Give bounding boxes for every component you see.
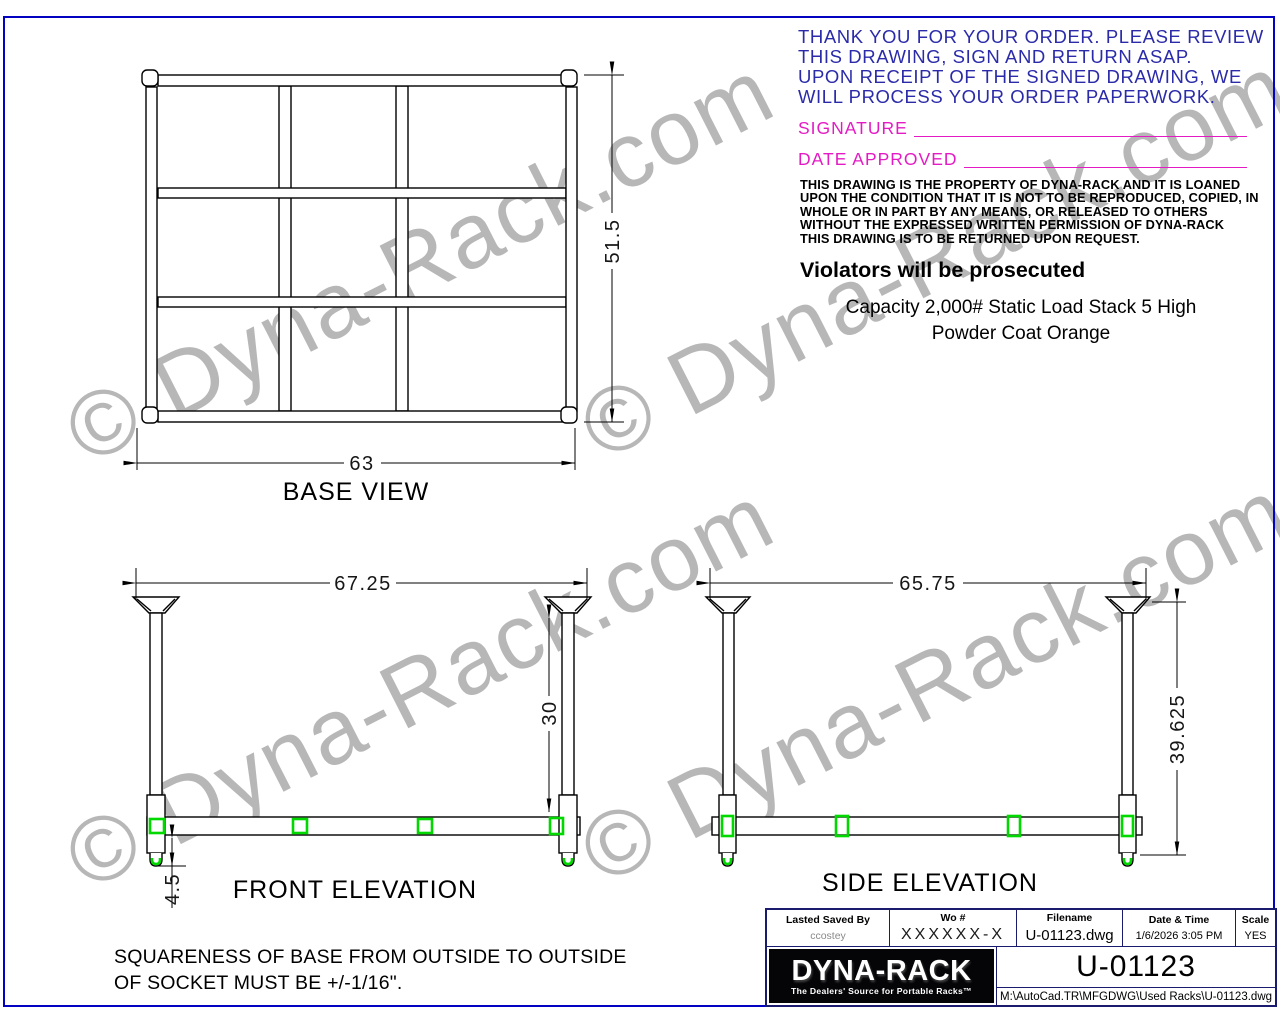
dyna-rack-logo: DYNA-RACK The Dealers' Source for Portab… (769, 949, 994, 1003)
field-scale: Scale YES (1236, 910, 1275, 946)
field-date-time: Date & Time 1/6/2026 3:05 PM (1123, 910, 1236, 946)
legal-line: WITHOUT THE EXPRESSED WRITTEN PERMISSION… (800, 218, 1259, 231)
signature-row: SIGNATURE (798, 118, 1247, 139)
order-notice-line: THIS DRAWING, SIGN AND RETURN ASAP. (798, 47, 1264, 67)
field-value: YES (1236, 930, 1275, 942)
field-value: ccostey (767, 930, 889, 942)
title-block: Lasted Saved By ccostey Wo # XXXXXX-X Fi… (765, 908, 1277, 1007)
legal-notice: THIS DRAWING IS THE PROPERTY OF DYNA-RAC… (800, 178, 1259, 245)
legal-line: UPON THE CONDITION THAT IT IS NOT TO BE … (800, 191, 1259, 204)
date-approved-row: DATE APPROVED (798, 149, 1247, 170)
squareness-note-line: OF SOCKET MUST BE +/-1/16". (114, 970, 627, 996)
field-value: 1/6/2026 3:05 PM (1123, 930, 1235, 942)
base-width-dimension: 63 (349, 453, 374, 475)
field-last-saved-by: Lasted Saved By ccostey (767, 910, 890, 946)
side-elevation-drawing (706, 597, 1150, 866)
front-elevation-drawing (133, 597, 591, 866)
date-approved-label: DATE APPROVED (798, 149, 958, 170)
drawing-sheet: © Dyna-Rack.com © Dyna-Rack.com © Dyna-R… (0, 0, 1280, 1024)
front-elevation-label: FRONT ELEVATION (233, 876, 477, 904)
field-wo-number: Wo # XXXXXX-X (890, 910, 1017, 946)
file-path: M:\AutoCad.TR\MFGDWG\Used Racks\U-01123.… (997, 988, 1275, 1005)
date-approved-line (964, 149, 1247, 168)
title-block-bottom-row: DYNA-RACK The Dealers' Source for Portab… (767, 947, 1275, 1005)
squareness-note: SQUARENESS OF BASE FROM OUTSIDE TO OUTSI… (114, 944, 627, 996)
drawing-number: U-01123 (997, 947, 1275, 988)
field-label: Lasted Saved By (767, 914, 889, 926)
logo-tagline: The Dealers' Source for Portable Racks™ (791, 986, 972, 996)
front-foot-dimension: 4.5 (162, 873, 184, 905)
base-height-dimension: 51.5 (602, 219, 624, 264)
signature-line (914, 118, 1247, 137)
order-notice: THANK YOU FOR YOUR ORDER. PLEASE REVIEW … (798, 27, 1264, 107)
legal-line: WHOLE OR IN PART BY ANY MEANS, OR RELEAS… (800, 205, 1259, 218)
capacity-spec-line: Powder Coat Orange (800, 321, 1242, 347)
base-view-drawing (142, 70, 577, 423)
field-value: XXXXXX-X (890, 926, 1016, 944)
legal-line: THIS DRAWING IS TO BE RETURNED UPON REQU… (800, 232, 1259, 245)
side-elevation-label: SIDE ELEVATION (822, 869, 1038, 897)
field-label: Wo # (890, 912, 1016, 924)
front-width-dimension: 67.25 (334, 573, 392, 595)
drawing-id-cell: U-01123 M:\AutoCad.TR\MFGDWG\Used Racks\… (997, 947, 1275, 1005)
legal-line: THIS DRAWING IS THE PROPERTY OF DYNA-RAC… (800, 178, 1259, 191)
side-elevation-dimension-lines (710, 568, 1186, 855)
logo-cell: DYNA-RACK The Dealers' Source for Portab… (767, 947, 997, 1005)
side-width-dimension: 65.75 (899, 573, 957, 595)
field-filename: Filename U-01123.dwg (1017, 910, 1123, 946)
order-notice-line: UPON RECEIPT OF THE SIGNED DRAWING, WE (798, 67, 1264, 87)
front-elevation-dimension-lines (136, 568, 587, 908)
front-height-dimension: 30 (539, 700, 561, 725)
base-view-label: BASE VIEW (283, 478, 430, 506)
order-notice-line: WILL PROCESS YOUR ORDER PAPERWORK. (798, 87, 1264, 107)
field-label: Scale (1236, 914, 1275, 926)
field-label: Date & Time (1123, 914, 1235, 926)
squareness-note-line: SQUARENESS OF BASE FROM OUTSIDE TO OUTSI… (114, 944, 627, 970)
violators-warning: Violators will be prosecuted (800, 258, 1085, 283)
logo-wordmark: DYNA-RACK (791, 956, 971, 986)
capacity-spec: Capacity 2,000# Static Load Stack 5 High… (800, 295, 1242, 347)
capacity-spec-line: Capacity 2,000# Static Load Stack 5 High (800, 295, 1242, 321)
order-notice-line: THANK YOU FOR YOUR ORDER. PLEASE REVIEW (798, 27, 1264, 47)
signature-label: SIGNATURE (798, 118, 908, 139)
side-height-dimension: 39.625 (1167, 694, 1189, 764)
title-block-header-row: Lasted Saved By ccostey Wo # XXXXXX-X Fi… (767, 910, 1275, 947)
field-value: U-01123.dwg (1017, 927, 1122, 944)
field-label: Filename (1017, 912, 1122, 924)
